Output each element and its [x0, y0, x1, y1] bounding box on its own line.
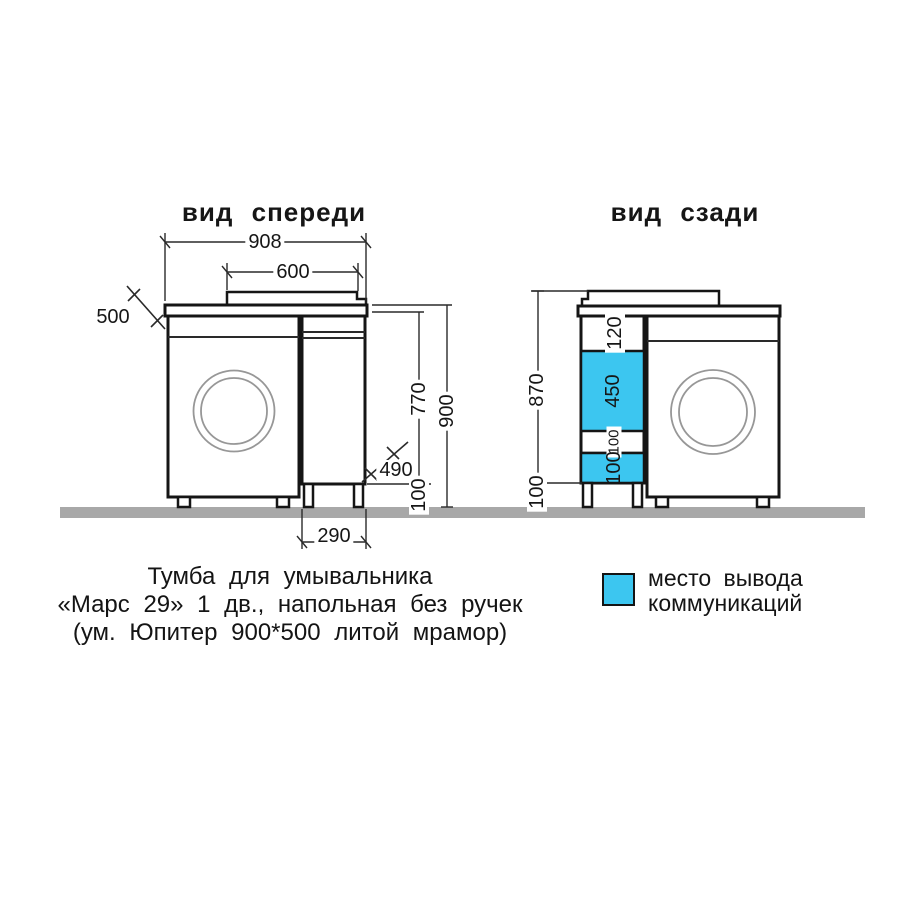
dim-label-back-leg-height: 100: [527, 472, 547, 511]
drawing-linework: [0, 0, 900, 900]
dim-label-front-leg-height: 100: [409, 475, 429, 514]
front-cabinet-column: [302, 316, 365, 484]
legend-color-swatch: [602, 573, 635, 606]
section-label-120: 120: [605, 313, 625, 352]
caption-line-1: Тумба для умывальника: [10, 563, 570, 591]
section-label-100-cyan: 100: [604, 448, 624, 487]
front-washing-machine-body: [168, 316, 299, 497]
front-machine-leg-left: [178, 497, 190, 507]
dim-500-diagonal: [127, 286, 165, 329]
back-machine-leg-left: [656, 497, 668, 507]
front-countertop: [165, 305, 367, 316]
dim-label-cabinet-width: 290: [314, 526, 353, 546]
back-cabinet-leg-right: [633, 483, 642, 507]
dim-label-body-height: 770: [409, 379, 429, 418]
product-caption: Тумба для умывальника «Марс 29» 1 дв., н…: [10, 563, 570, 647]
front-machine-leg-right: [277, 497, 289, 507]
caption-line-3: (ум. Юпитер 900*500 литой мрамор): [10, 619, 570, 647]
legend-text: место вывода коммуникаций: [648, 566, 803, 616]
dim-label-total-height: 900: [437, 391, 457, 430]
back-washing-machine-body: [647, 316, 779, 497]
front-cabinet-leg-right: [354, 484, 363, 507]
dim-label-height-to-top: 870: [527, 370, 547, 409]
back-cabinet-leg-left: [583, 483, 592, 507]
dim-label-total-width: 908: [245, 232, 284, 252]
section-label-450: 450: [603, 371, 623, 410]
legend-line-2: коммуникаций: [648, 591, 803, 616]
front-cabinet-leg-left: [304, 484, 313, 507]
caption-line-2: «Марс 29» 1 дв., напольная без ручек: [10, 591, 570, 619]
x-mark-icon: [387, 447, 399, 459]
dim-label-sink-width: 600: [273, 262, 312, 282]
technical-drawing-page: вид спереди вид сзади: [0, 0, 900, 900]
floor-band: [60, 507, 865, 518]
back-machine-leg-right: [757, 497, 769, 507]
legend-line-1: место вывода: [648, 566, 803, 591]
back-view-drawing: [531, 291, 780, 507]
dim-label-depth-top: 500: [93, 307, 132, 327]
